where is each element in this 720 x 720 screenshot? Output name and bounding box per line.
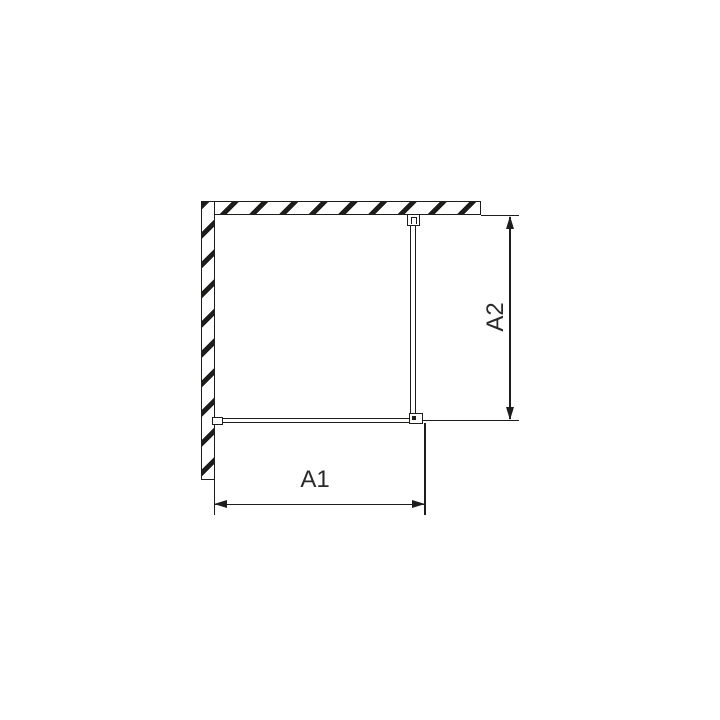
dimension-a2-line bbox=[509, 217, 511, 419]
dimension-a2-arrow-down-icon bbox=[506, 407, 514, 420]
dimension-a1-line bbox=[215, 504, 424, 506]
dimension-a1-arrow-right-icon bbox=[412, 500, 425, 508]
wall-bracket-clamp-icon bbox=[411, 217, 417, 224]
dimension-a1-arrow-left-icon bbox=[214, 500, 227, 508]
wall-bracket-top bbox=[407, 214, 420, 226]
dimension-a2-arrow-up-icon bbox=[506, 216, 514, 229]
glass-panel-vertical bbox=[410, 224, 416, 415]
dimension-a2-label: A2 bbox=[484, 302, 508, 331]
panel-endcap-left bbox=[212, 417, 223, 426]
dimension-a2-extension-bottom bbox=[423, 420, 519, 421]
panel-connector-detail bbox=[412, 416, 416, 420]
wall-top bbox=[201, 201, 481, 215]
drawing-canvas: A2 A1 bbox=[0, 0, 720, 720]
glass-panel-horizontal bbox=[222, 418, 410, 423]
panel-connector-bottom bbox=[409, 413, 423, 424]
dimension-a1-label: A1 bbox=[300, 468, 329, 492]
